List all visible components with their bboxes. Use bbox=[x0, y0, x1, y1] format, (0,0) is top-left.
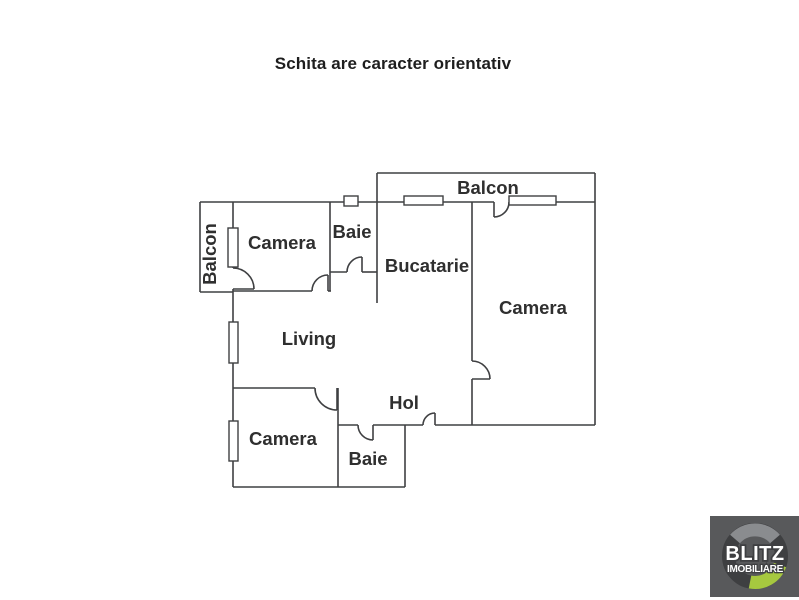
logo-ring-highlight bbox=[735, 530, 775, 539]
logo-subtitle-text: IMOBILIARE bbox=[727, 564, 784, 575]
room-label-balcon-left: Balcon bbox=[199, 223, 220, 285]
logo-brand-text: BLITZ bbox=[725, 543, 784, 565]
window-kitchen bbox=[404, 196, 443, 205]
door-arc-cameraB bbox=[315, 388, 337, 410]
door-arc-baieB bbox=[358, 425, 373, 440]
room-label-balcon-top: Balcon bbox=[457, 177, 519, 198]
room-label-camera-right: Camera bbox=[499, 297, 568, 318]
floorplan-drawing: Balcon Camera Baie Bucatarie Balcon Came… bbox=[0, 0, 799, 600]
room-label-living: Living bbox=[282, 328, 336, 349]
window-baieT bbox=[344, 196, 358, 206]
door-arc-cameraTL bbox=[312, 275, 328, 291]
room-label-baie-bottom: Baie bbox=[348, 448, 387, 469]
door-arc-balcony-top bbox=[494, 202, 509, 217]
room-label-bucatarie: Bucatarie bbox=[385, 255, 469, 276]
logo-graphic: BLITZ IMOBILIARE bbox=[710, 516, 799, 597]
door-arc-cameraR bbox=[472, 361, 490, 379]
door-arc-entrance bbox=[423, 413, 435, 425]
door-arc-balcony-left bbox=[233, 268, 254, 289]
blitz-imobiliare-logo: BLITZ IMOBILIARE bbox=[710, 516, 799, 597]
window-living bbox=[229, 322, 238, 363]
door-arc-baieT bbox=[347, 257, 362, 272]
window-cameraB bbox=[229, 421, 238, 461]
room-label-baie-top: Baie bbox=[332, 221, 371, 242]
room-label-camera-top-left: Camera bbox=[248, 232, 317, 253]
room-label-camera-bottom: Camera bbox=[249, 428, 318, 449]
floorplan-page: Schita are caracter orientativ bbox=[0, 0, 799, 600]
window-balcony-left bbox=[228, 228, 238, 267]
room-label-hol: Hol bbox=[389, 392, 419, 413]
